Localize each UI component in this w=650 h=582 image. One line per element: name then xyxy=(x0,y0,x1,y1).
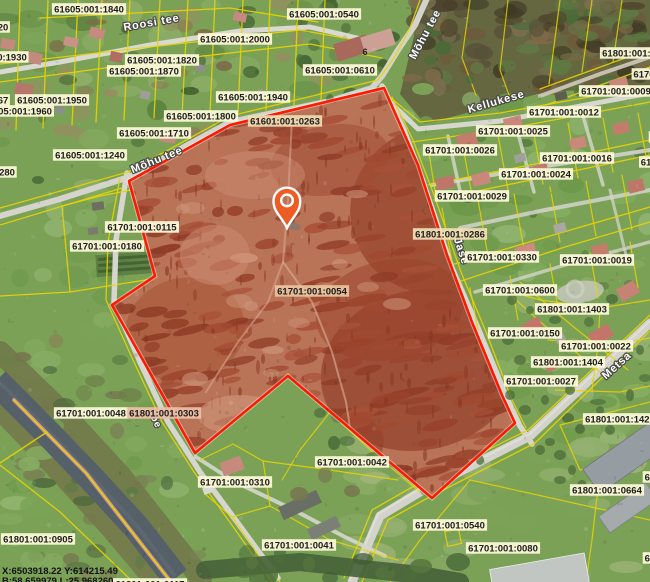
svg-text:61801:001:0664: 61801:001:0664 xyxy=(572,485,642,496)
svg-text:61701:001:0054: 61701:001:0054 xyxy=(277,286,347,297)
svg-text:61701:001:0016: 61701:001:0016 xyxy=(542,153,612,164)
svg-text:61701:001:0022: 61701:001:0022 xyxy=(561,341,631,352)
svg-text:61701:001:0330: 61701:001:0330 xyxy=(467,252,537,263)
svg-text:61701:001:0029: 61701:001:0029 xyxy=(437,191,507,202)
svg-text:61605:001:1800: 61605:001:1800 xyxy=(166,111,236,122)
svg-text:05:001:1960: 05:001:1960 xyxy=(0,106,52,117)
svg-text:61605:001:1950: 61605:001:1950 xyxy=(17,95,87,106)
svg-text:61701:001:0041: 61701:001:0041 xyxy=(264,540,334,551)
svg-text:61701:001:0025: 61701:001:0025 xyxy=(478,126,548,137)
svg-text:61601:001:0263: 61601:001:0263 xyxy=(250,116,320,127)
svg-text:61801:001:1404: 61801:001:1404 xyxy=(533,357,603,368)
svg-text:61701:001:0024: 61701:001:0024 xyxy=(501,169,571,180)
svg-text:20: 20 xyxy=(0,22,8,33)
svg-text:61801:001:0016: 61801:001:0016 xyxy=(602,48,650,59)
svg-text:61605:001:0610: 61605:001:0610 xyxy=(305,65,375,76)
svg-text:61801:001:1428: 61801:001:1428 xyxy=(585,414,650,425)
svg-text:B:58.659979 L:25.968260: B:58.659979 L:25.968260 xyxy=(2,576,113,582)
svg-text:61801:001:0905: 61801:001:0905 xyxy=(3,534,73,545)
svg-text:61605:001:1870: 61605:001:1870 xyxy=(109,66,179,77)
svg-text:61701:001:0310: 61701:001:0310 xyxy=(200,477,270,488)
svg-text:61701:001:0012: 61701:001:0012 xyxy=(529,107,599,118)
svg-text:61701:001:0019: 61701:001:0019 xyxy=(562,255,632,266)
svg-text:61605:001:1840: 61605:001:1840 xyxy=(54,4,124,15)
svg-text:61701:001:0026: 61701:001:0026 xyxy=(425,145,495,156)
svg-text:0:1930: 0:1930 xyxy=(0,52,27,63)
svg-text:61701:001:0080: 61701:001:0080 xyxy=(468,543,538,554)
svg-text:61701:001:0115: 61701:001:0115 xyxy=(107,222,177,233)
svg-text:61605:001:1240: 61605:001:1240 xyxy=(55,150,125,161)
svg-text:61701:001:0180: 61701:001:0180 xyxy=(72,241,142,252)
svg-text:61: 61 xyxy=(641,157,650,168)
svg-text:61801:001:1403: 61801:001:1403 xyxy=(537,304,607,315)
svg-text:280: 280 xyxy=(0,167,15,178)
svg-text:61605:001:2000: 61605:001:2000 xyxy=(200,34,270,45)
svg-text:61701:001:0150: 61701:001:0150 xyxy=(490,328,560,339)
svg-text:61605:001:1710: 61605:001:1710 xyxy=(119,128,189,139)
svg-text:61701:001:0600: 61701:001:0600 xyxy=(485,285,555,296)
svg-text:61701:001:0540: 61701:001:0540 xyxy=(415,520,485,531)
svg-text:61701:001:0027: 61701:001:0027 xyxy=(506,376,576,387)
svg-text:6170: 6170 xyxy=(633,69,650,80)
svg-text:61605:001:0540: 61605:001:0540 xyxy=(289,9,359,20)
svg-text:6: 6 xyxy=(362,47,367,57)
svg-text:61605:001:1940: 61605:001:1940 xyxy=(218,92,288,103)
svg-text:61701:001:0009: 61701:001:0009 xyxy=(581,86,650,97)
svg-text:61605:001:1820: 61605:001:1820 xyxy=(127,55,197,66)
svg-text:61801:0: 61801:0 xyxy=(645,553,650,564)
svg-text:61701:001:0048: 61701:001:0048 xyxy=(56,408,126,419)
svg-text:67: 67 xyxy=(0,95,8,106)
svg-text:61801:001:0286: 61801:001:0286 xyxy=(415,229,485,240)
svg-text:61801:001:0303: 61801:001:0303 xyxy=(129,408,199,419)
svg-text:61801:0: 61801:0 xyxy=(645,472,650,483)
svg-text:61701:001:0042: 61701:001:0042 xyxy=(317,457,387,468)
